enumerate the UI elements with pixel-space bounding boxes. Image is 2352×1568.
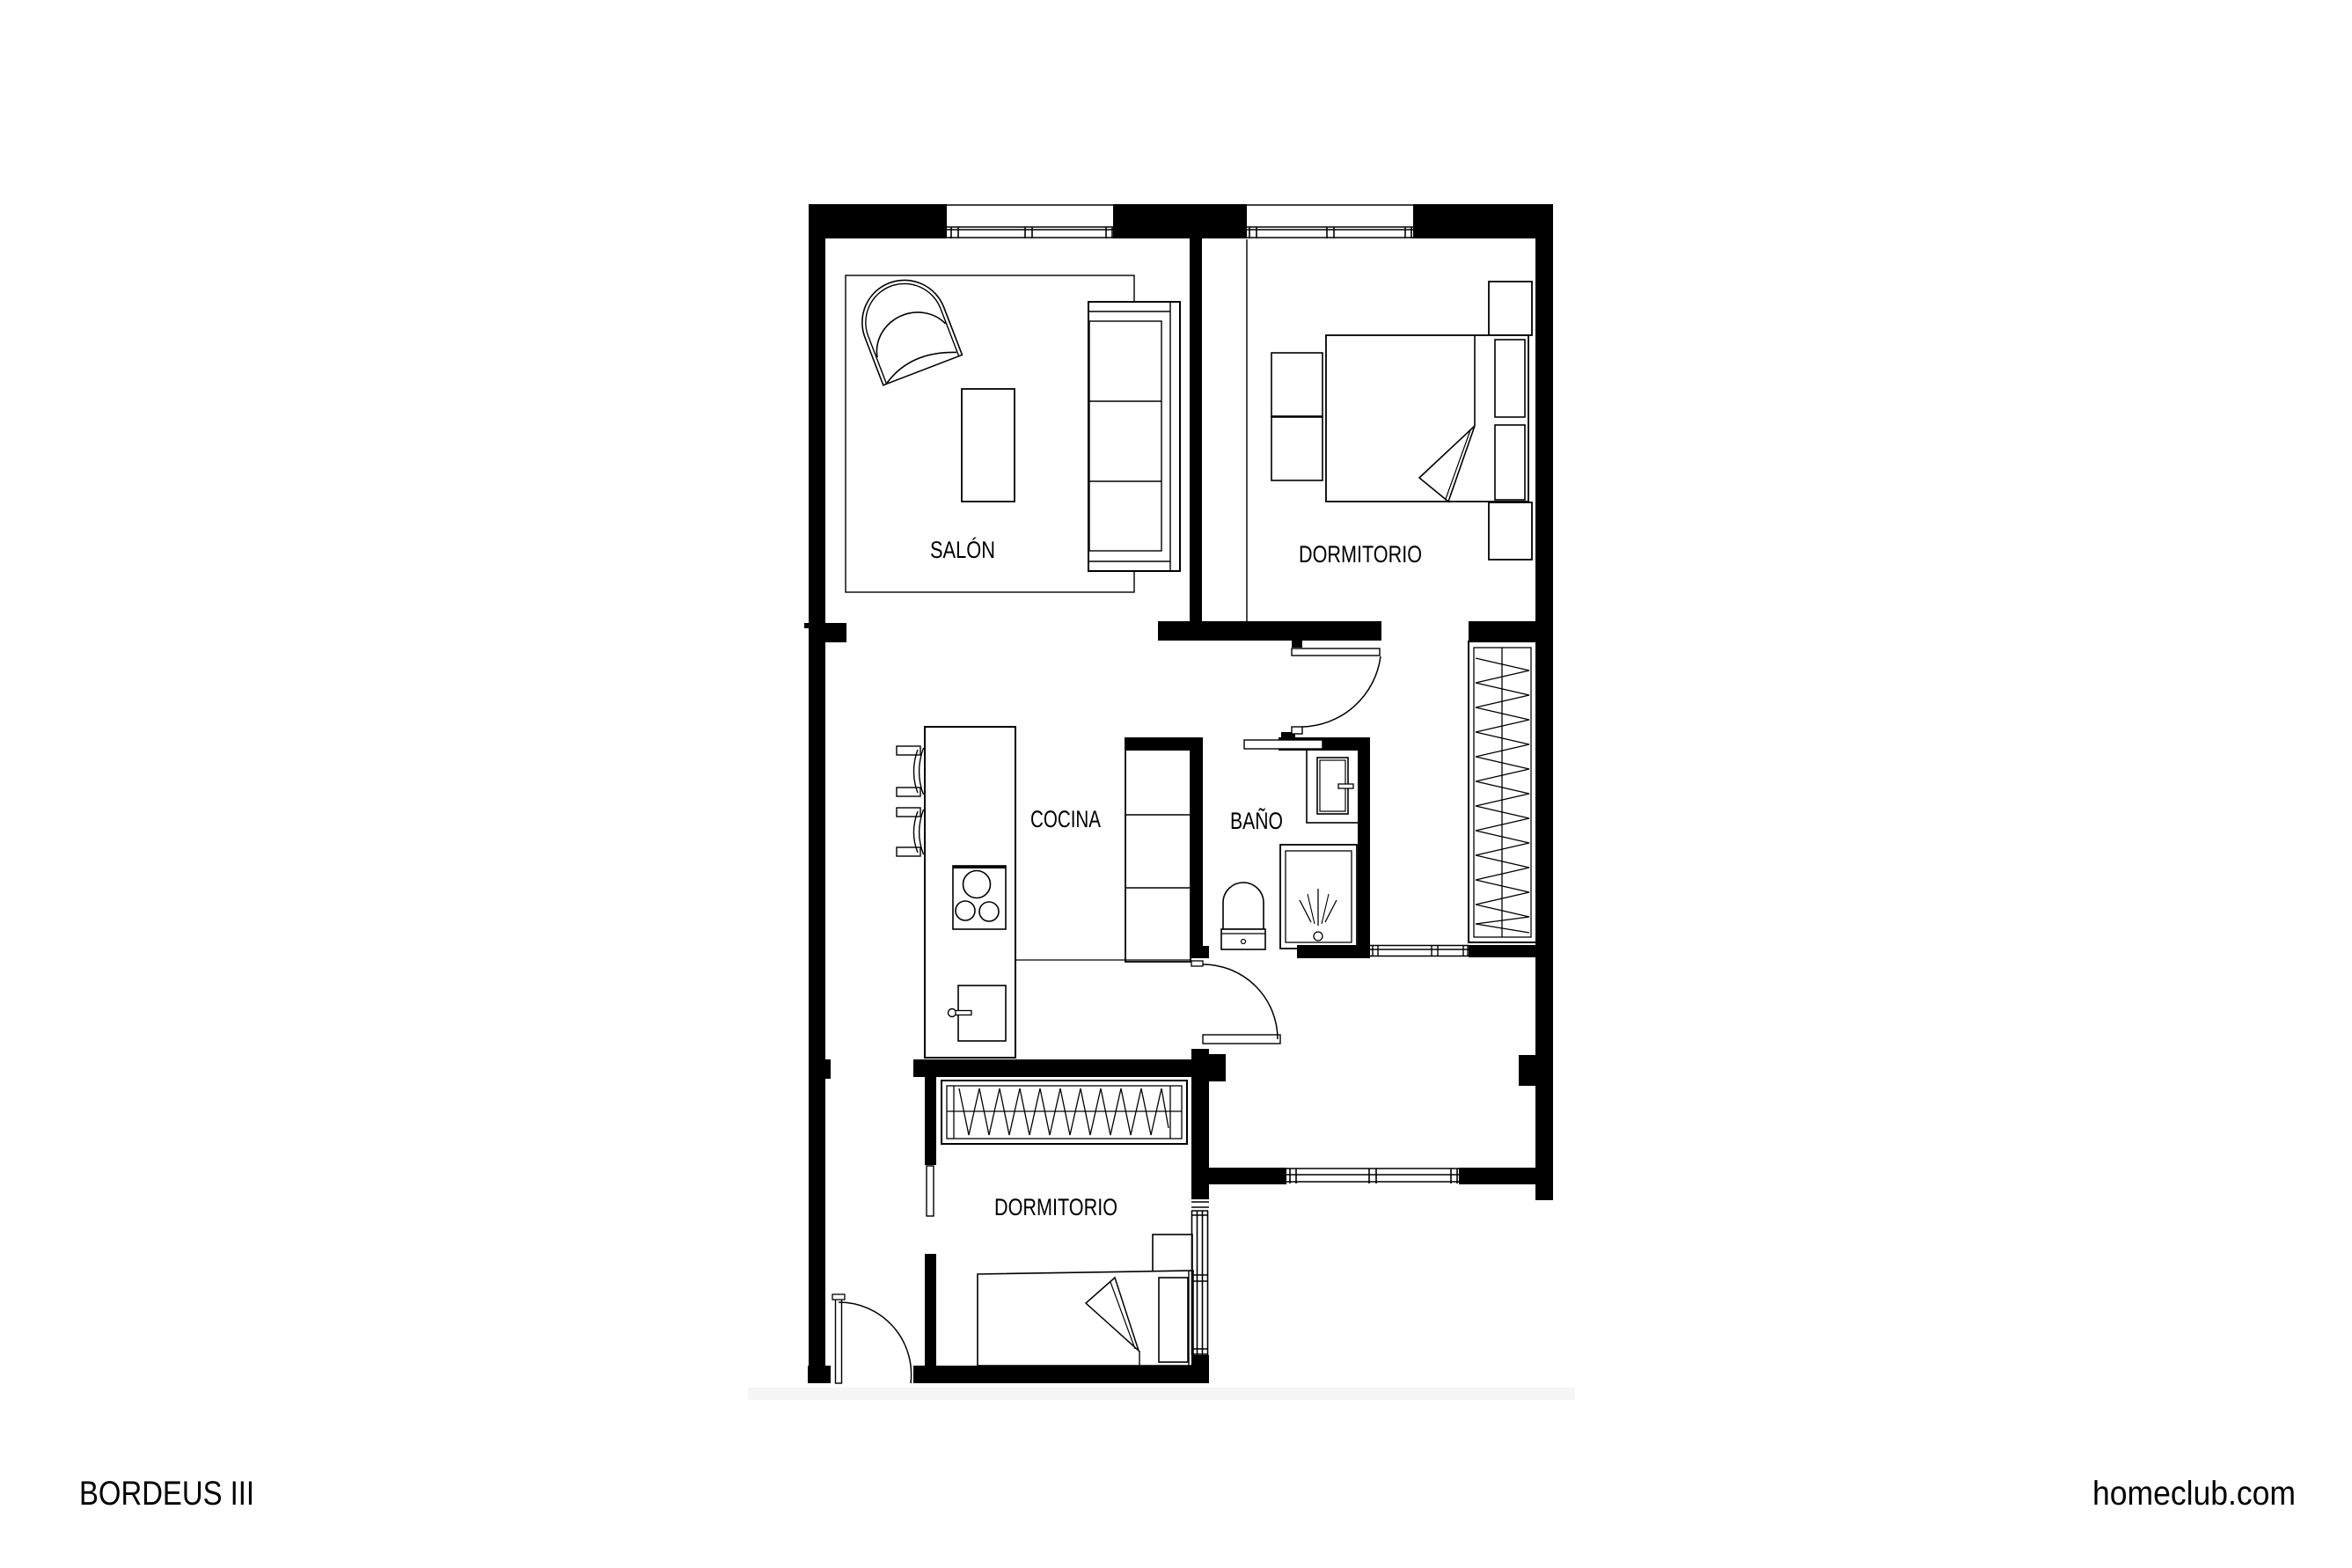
- svg-text:DORMITORIO: DORMITORIO: [1299, 541, 1422, 568]
- svg-text:DORMITORIO: DORMITORIO: [994, 1194, 1117, 1220]
- svg-text:COCINA: COCINA: [1030, 806, 1101, 832]
- svg-text:SALÓN: SALÓN: [930, 537, 995, 563]
- svg-text:BAÑO: BAÑO: [1230, 808, 1283, 834]
- svg-text:homeclub.com: homeclub.com: [2092, 1475, 2296, 1513]
- svg-text:BORDEUS III: BORDEUS III: [79, 1475, 254, 1513]
